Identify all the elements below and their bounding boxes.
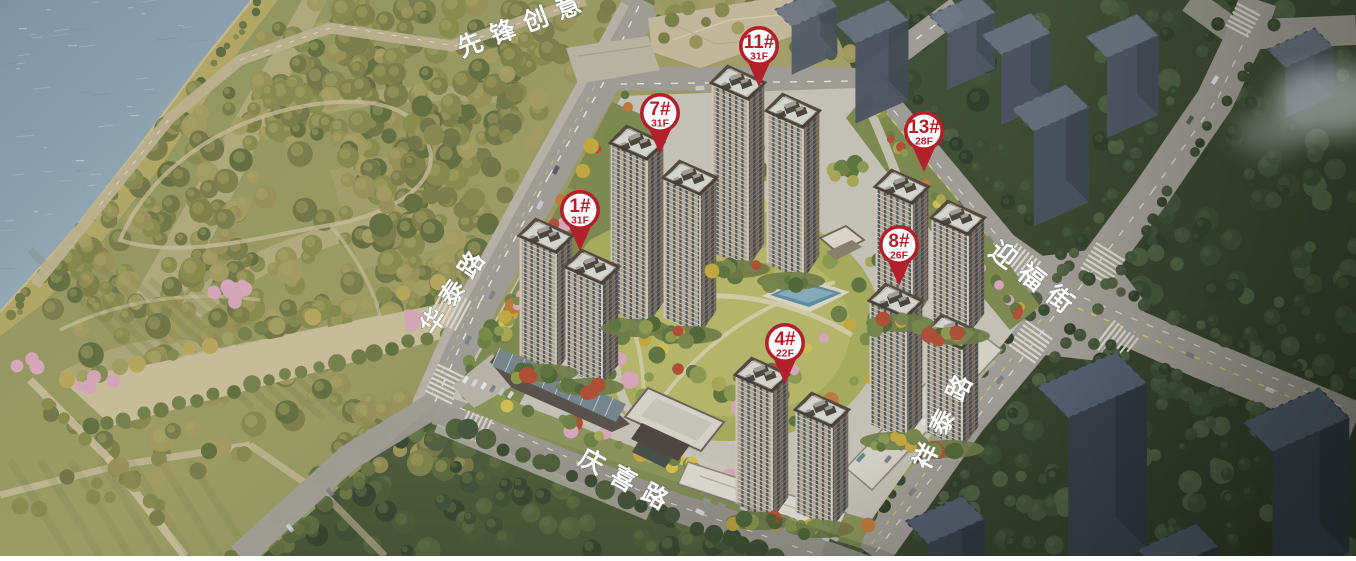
svg-text:31F: 31F: [651, 118, 670, 130]
svg-text:31F: 31F: [571, 215, 590, 227]
svg-text:28F: 28F: [915, 136, 934, 148]
svg-text:26F: 26F: [890, 250, 909, 262]
svg-text:22F: 22F: [776, 348, 795, 360]
svg-text:31F: 31F: [750, 51, 769, 63]
